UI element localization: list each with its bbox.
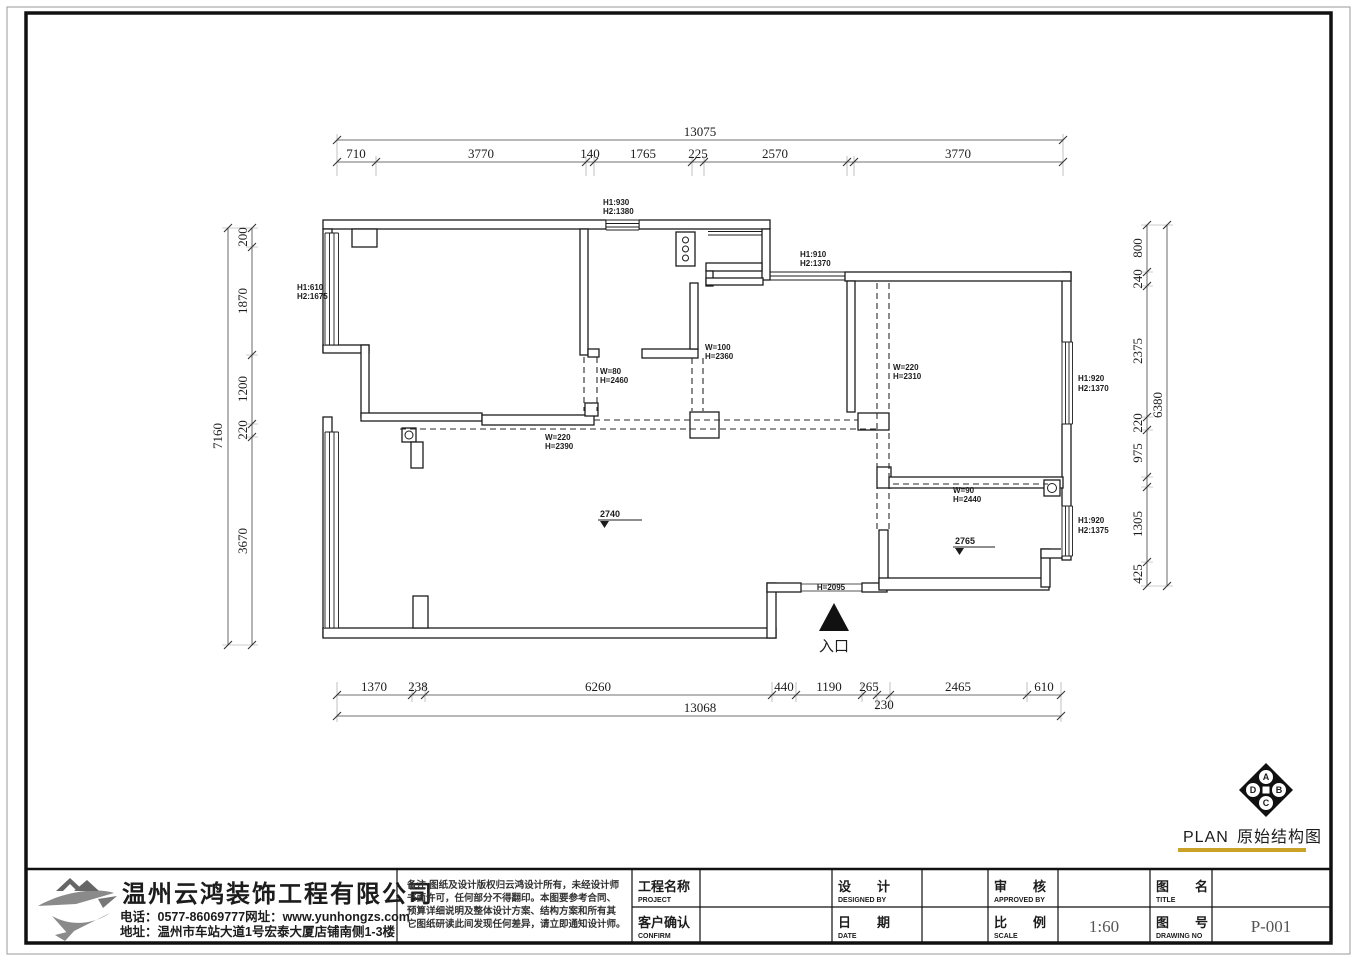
dim-bot-0: 1370 xyxy=(361,679,387,694)
dim-right-total: 6380 xyxy=(1150,392,1165,418)
door-w80-label2: H=2460 xyxy=(600,376,629,385)
dim-bot-small: 230 xyxy=(874,697,894,712)
dim-right-6: 425 xyxy=(1130,564,1145,584)
field-title-en: TITLE xyxy=(1156,897,1176,904)
company-address: 地址：温州市车站大道1号宏泰大厦店铺南侧1-3楼 xyxy=(120,924,396,939)
door-w100-label: W=100 xyxy=(705,343,731,352)
dim-top-6: 3770 xyxy=(945,146,971,161)
open-w220-label: W=220 xyxy=(893,363,919,372)
beam-w220-label: W=220 xyxy=(545,433,571,442)
win-left-label2: H2:1675 xyxy=(297,292,328,301)
dim-top-2: 140 xyxy=(580,146,600,161)
elevation-symbol: A B C D xyxy=(1239,763,1293,817)
door-w80-label: W=80 xyxy=(600,367,622,376)
title-block-fields: 工程名称 PROJECT 客户确认 CONFIRM 设 计 DESIGNED B… xyxy=(638,879,1291,940)
note-line-1: 备注:图纸及设计版权归云鸿设计所有，未经设计师 xyxy=(406,879,620,891)
dim-bot-7: 610 xyxy=(1034,679,1054,694)
plan-title: PLAN 原始结构图 xyxy=(1178,828,1322,852)
dimension-text-right: 800 240 2375 220 975 1305 425 6380 xyxy=(1130,238,1165,584)
dim-left-3: 220 xyxy=(235,420,250,440)
dim-left-1: 1870 xyxy=(235,288,250,314)
field-designed-zh: 设 计 xyxy=(838,879,890,894)
field-confirm-en: CONFIRM xyxy=(638,933,671,940)
dim-right-0: 800 xyxy=(1130,238,1145,258)
dim-right-2: 2375 xyxy=(1130,338,1145,364)
company-logo-icon xyxy=(38,878,117,941)
dim-top-3: 1765 xyxy=(630,146,656,161)
entrance-arrow-icon xyxy=(819,603,849,631)
win-east-top-label2: H2:1370 xyxy=(1078,384,1109,393)
field-project-en: PROJECT xyxy=(638,897,672,904)
sheet-border xyxy=(7,7,1350,954)
field-confirm-zh: 客户确认 xyxy=(638,915,691,930)
level-living-label: 2740 xyxy=(600,509,620,519)
win-top-label2: H2:1380 xyxy=(603,207,634,216)
company-name: 温州云鸿装饰工程有限公司 xyxy=(122,880,434,908)
dim-right-3: 220 xyxy=(1130,413,1145,433)
dim-left-total: 7160 xyxy=(210,423,225,449)
field-approved-zh: 审 核 xyxy=(994,879,1046,894)
open-w90-label: W=90 xyxy=(953,486,975,495)
field-date-zh: 日 期 xyxy=(838,915,890,930)
dim-left-0: 200 xyxy=(235,227,250,247)
dimension-text-top: 13075 710 3770 140 1765 225 2570 3770 xyxy=(346,124,971,161)
compass-c: C xyxy=(1263,798,1270,808)
dim-bot-2: 6260 xyxy=(585,679,611,694)
compass-b: B xyxy=(1276,785,1283,795)
compass-a: A xyxy=(1263,772,1270,782)
win-upper-right-label: H1:910 xyxy=(800,250,827,259)
note-line-4: 它图纸研读此间发现任何差异，请立即通知设计师。 xyxy=(407,918,626,930)
dashed-openings xyxy=(400,283,1048,530)
note-line-2: 书面许可，任何部分不得翻印。本图要参考合同、 xyxy=(407,892,616,904)
plan-title-zh: 原始结构图 xyxy=(1237,828,1322,846)
win-east-bottom-label: H1:920 xyxy=(1078,516,1105,525)
dim-bot-total: 13068 xyxy=(684,700,717,715)
dim-left-2: 1200 xyxy=(235,376,250,402)
company-info: 温州云鸿装饰工程有限公司 电话：0577-86069777网址：www.yunh… xyxy=(120,880,434,939)
field-scale-value: 1:60 xyxy=(1089,917,1119,936)
field-date-en: DATE xyxy=(838,933,857,940)
dim-top-4: 225 xyxy=(688,146,708,161)
field-drawingno-value: P-001 xyxy=(1251,917,1292,936)
field-project-zh: 工程名称 xyxy=(638,879,690,894)
dim-top-0: 710 xyxy=(346,146,366,161)
win-east-bottom-label2: H2:1375 xyxy=(1078,526,1109,535)
floor-plan-canvas: H1:930 H2:1380 H1:910 H2:1370 H1:610 H2:… xyxy=(0,0,1357,961)
field-drawingno-en: DRAWING NO xyxy=(1156,933,1203,940)
win-east-top-label: H1:920 xyxy=(1078,374,1105,383)
win-upper-right-label2: H2:1370 xyxy=(800,259,831,268)
plan-title-underline xyxy=(1178,848,1306,852)
open-w220-label2: H=2310 xyxy=(893,372,922,381)
beam-w220-label2: H=2390 xyxy=(545,442,574,451)
note-line-3: 预算详细说明及整体设计方案、结构方案和所有其 xyxy=(407,905,617,917)
dim-top-1: 3770 xyxy=(468,146,494,161)
dim-right-4: 975 xyxy=(1130,443,1145,463)
dim-right-5: 1305 xyxy=(1130,511,1145,537)
dim-bot-6: 2465 xyxy=(945,679,971,694)
open-w90-label2: H=2440 xyxy=(953,495,982,504)
compass-d: D xyxy=(1250,785,1257,795)
plan-title-en: PLAN xyxy=(1183,829,1229,846)
dim-left-4: 3670 xyxy=(235,528,250,554)
win-top-label: H1:930 xyxy=(603,198,630,207)
field-approved-en: APPROVED BY xyxy=(994,897,1045,904)
dimension-text-bottom: 1370 238 6260 440 1190 265 2465 610 230 … xyxy=(361,679,1054,715)
drawing-notes: 备注:图纸及设计版权归云鸿设计所有，未经设计师 书面许可，任何部分不得翻印。本图… xyxy=(406,879,626,930)
field-scale-zh: 比 例 xyxy=(994,915,1046,930)
entry-height-label: H=2095 xyxy=(817,583,846,592)
dim-bot-4: 1190 xyxy=(816,679,842,694)
dim-bot-5: 265 xyxy=(859,679,879,694)
company-phone: 电话：0577-86069777网址：www.yunhongzs.com xyxy=(120,909,410,924)
field-drawingno-zh: 图 号 xyxy=(1156,915,1208,930)
dim-bot-1: 238 xyxy=(408,679,428,694)
dim-bot-3: 440 xyxy=(774,679,794,694)
win-left-label: H1:610 xyxy=(297,283,324,292)
dim-top-total: 13075 xyxy=(684,124,717,139)
dim-right-1: 240 xyxy=(1130,269,1145,289)
field-title-zh: 图 名 xyxy=(1156,879,1208,894)
drawing-sheet: H1:930 H2:1380 H1:910 H2:1370 H1:610 H2:… xyxy=(0,0,1357,961)
dim-top-5: 2570 xyxy=(762,146,788,161)
entrance-label: 入口 xyxy=(819,638,849,655)
field-designed-en: DESIGNED BY xyxy=(838,897,887,904)
field-scale-en: SCALE xyxy=(994,933,1018,940)
level-bedroom-label: 2765 xyxy=(955,536,975,546)
door-w100-label2: H=2360 xyxy=(705,352,734,361)
dimension-text-left: 200 1870 1200 220 3670 7160 xyxy=(210,227,250,554)
level-markers xyxy=(600,521,964,555)
